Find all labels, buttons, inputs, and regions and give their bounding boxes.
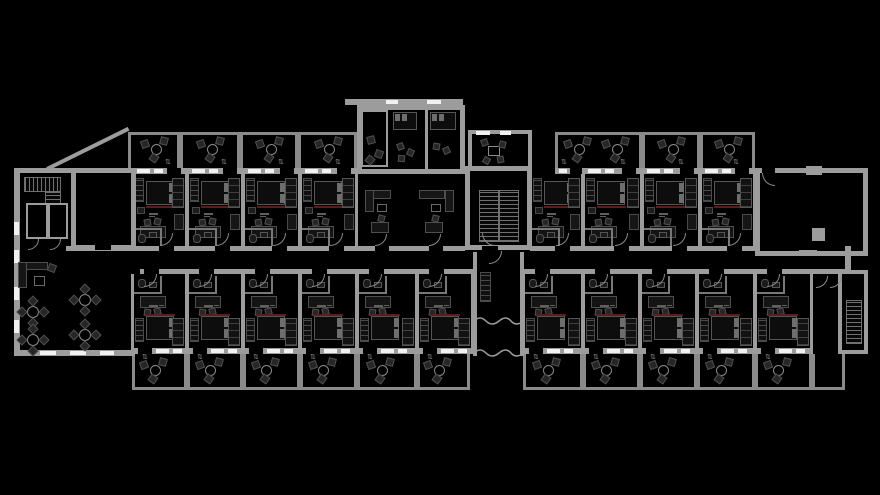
corridor-wall [140,269,473,274]
toilet [648,234,656,243]
exterior-wall [14,168,74,173]
chair [496,155,504,163]
window [248,169,261,173]
nightstand [535,207,543,214]
shaft-column [480,272,491,302]
tv-shelf [287,214,297,230]
window [721,349,734,353]
chair [254,218,262,226]
door-gap [95,245,111,250]
balcony-chair [255,139,265,149]
door-arc [330,233,343,246]
window [173,349,182,353]
shaft-column [190,318,199,342]
direction-arrow: ⇅ [335,159,341,166]
window [738,349,747,353]
shaft-column [700,318,709,342]
direction-arrow: ⇅ [620,159,626,166]
window [779,349,792,353]
bed-accent [656,206,685,208]
wardrobe [740,178,752,208]
door-gap [167,168,181,174]
chair [604,217,612,225]
balcony-chair [158,357,168,367]
door-arc [728,233,741,246]
label-mark [317,305,326,307]
stair-divider [498,190,500,242]
balcony-divider [640,354,643,390]
sink [149,232,157,238]
bathroom-partition [611,228,613,246]
label-mark [659,213,668,215]
window [14,222,19,235]
break-line [474,314,524,326]
balcony-chair [214,357,224,367]
nightstand [705,207,713,214]
window [284,349,293,353]
sink [659,232,667,238]
lounge-chair [90,294,101,305]
chair [551,217,559,225]
shaft-column [703,178,712,202]
balcony-divider [243,354,246,390]
bed-accent [257,206,286,208]
interior-wall [425,110,428,174]
bathroom-partition [611,276,613,294]
door-arc [489,251,502,264]
lounge-chair [38,334,49,345]
chair [541,218,549,226]
label-mark [550,305,555,306]
window [100,351,114,355]
bathroom-partition [245,228,273,230]
wardrobe [568,178,580,208]
window [228,349,237,353]
left-small-room [48,203,68,239]
shaft-column [246,178,255,202]
label-mark [317,213,326,215]
tv-shelf [687,214,697,230]
balcony-chair [610,357,620,367]
interior-wall [520,252,524,356]
label-mark [260,213,269,215]
balcony-divider [555,132,558,168]
balcony-divider [300,354,303,390]
label-mark [772,305,781,307]
shaft-column [303,178,312,202]
label-mark [724,305,729,306]
chair [321,217,329,225]
interior-wall [416,274,419,354]
door-gap [709,269,724,274]
window [192,169,205,173]
balcony-chair [620,136,630,146]
toilet [138,234,146,243]
balcony-chair [563,139,573,149]
wardrobe [342,318,354,346]
bathroom-partition [644,228,672,230]
window [564,349,573,353]
door-gap [144,269,159,274]
window [500,131,511,135]
window [441,349,454,353]
wardrobe [228,318,240,346]
door-gap [767,269,782,274]
bathroom-partition [271,276,273,294]
balcony-rail [128,132,180,135]
label-mark [657,305,666,307]
lounge-chair [90,329,101,340]
lounge-table [431,204,441,212]
balcony-chair [215,136,225,146]
label-mark [149,305,158,307]
nightstand [588,207,596,214]
bathroom-partition [189,292,217,294]
label-mark [714,305,723,307]
label-mark [444,305,449,306]
window [605,169,614,173]
balcony-divider [842,354,845,390]
door-gap [255,269,270,274]
balcony-divider [752,132,755,168]
door-arc [50,239,61,250]
sink [717,232,725,238]
window [14,320,19,333]
corridor-wall [520,269,845,274]
balcony-chair [582,136,592,146]
tv-shelf [174,214,184,230]
structural-column [812,228,825,241]
floor-plan: ⇅⇅⇅⇅⇅⇅⇅⇅⇅⇅⇅⇅⇅⇅⇅⇅⇅⇅⇅ [0,0,880,495]
bathroom-partition [189,228,217,230]
balcony-chair [251,360,261,370]
interior-wall [299,274,302,354]
interior-wall [131,274,134,354]
door-arc [273,233,286,246]
tv-shelf [344,214,354,230]
direction-arrow: ⇅ [678,159,684,166]
door-gap [329,246,344,251]
balcony-divider [812,354,815,390]
sink [204,232,212,238]
balcony-table [27,334,39,346]
bathroom-partition [699,292,727,294]
bathroom-partition [585,292,613,294]
bed-accent [597,206,626,208]
bathroom-partition [551,276,553,294]
bathroom-partition [419,292,447,294]
chair [377,214,386,223]
door-gap [595,269,610,274]
shaft-column [533,178,542,202]
shaft-column [586,318,595,342]
window [209,169,218,173]
canopy [345,99,463,105]
wardrobe [172,178,184,208]
bathroom-partition [215,276,217,294]
balcony-divider [417,354,420,390]
interior-wall [754,274,757,354]
balcony-rail [642,132,700,135]
direction-arrow: ⇅ [733,159,739,166]
balcony-rail [640,387,697,390]
left-small-room [26,203,48,239]
bathroom-partition [160,276,162,294]
door-gap [614,246,629,251]
window [267,349,280,353]
door-gap [375,246,389,251]
bathroom-partition [670,228,672,246]
shaft-column [135,178,144,202]
interior-wall [639,274,642,354]
label-mark [270,305,275,306]
door-arc [816,276,828,288]
balcony-rail [180,132,240,135]
exterior-wall [46,127,129,171]
door-gap [727,246,742,251]
interior-wall [810,274,813,354]
shaft-column [758,318,767,342]
sink [600,232,608,238]
balcony-rail [583,387,640,390]
bathroom-partition [668,276,670,294]
balcony-chair [196,139,206,149]
balcony-chair [308,360,318,370]
balcony-rail [555,132,642,135]
label-mark [782,305,787,306]
window [137,169,150,173]
balcony-chair [333,136,343,146]
window [607,349,620,353]
balcony-rail [812,387,845,390]
label-mark [547,213,556,215]
balcony-divider [180,132,183,168]
toilet [536,234,544,243]
pillow [395,114,400,121]
bed-accent [146,206,175,208]
balcony-rail [300,387,357,390]
interior-wall [355,168,358,246]
door-arc [429,234,441,246]
chair [480,138,489,147]
balcony-chair [366,360,376,370]
balcony-table [27,306,39,318]
bathroom-partition [445,276,447,294]
window [322,169,331,173]
bathroom-partition [134,228,162,230]
lounge-chair [79,305,90,316]
nightstand [137,207,145,214]
window [341,349,350,353]
staircase [846,300,862,344]
balcony-divider [642,132,645,168]
door-gap [159,246,174,251]
door-gap [652,269,667,274]
door-gap [570,168,582,174]
window [722,169,731,173]
staircase [24,177,61,192]
balcony-chair [159,136,169,146]
upper-room [468,130,532,170]
chair [711,218,719,226]
balcony-chair [648,360,658,370]
balcony-chair [724,357,734,367]
shaft-column [190,178,199,202]
balcony-rail [298,132,357,135]
balcony-chair [274,136,284,146]
direction-arrow: ⇅ [221,159,227,166]
balcony-chair [657,139,667,149]
wall-tick [799,250,817,256]
door-gap [429,246,443,251]
label-mark [610,305,615,306]
wardrobe [797,318,809,346]
window [624,349,633,353]
balcony-chair [385,357,395,367]
direction-arrow: ⇅ [278,159,284,166]
toilet [306,234,314,243]
shaft-column [526,318,535,342]
interior-wall [356,274,359,354]
label-mark [384,305,389,306]
window [211,349,224,353]
label-mark [214,305,219,306]
door-arc [615,233,628,246]
window [14,287,19,300]
balcony-chair [782,357,792,367]
balcony-divider [132,354,135,390]
balcony-divider [187,354,190,390]
interior-wall [473,252,477,356]
chair [498,140,507,149]
window [305,169,318,173]
label-mark [540,305,549,307]
window [681,349,690,353]
bathroom-partition [525,292,553,294]
label-mark [327,305,332,306]
window [664,349,677,353]
balcony-rail [187,387,243,390]
label-mark [374,305,383,307]
bathroom-partition [359,292,387,294]
window [154,169,163,173]
chair [208,217,216,225]
door-gap [223,168,237,174]
break-line [474,346,524,358]
chair [311,218,319,226]
balcony-chair [667,357,677,367]
label-mark [667,305,672,306]
door-arc [28,239,39,250]
bathroom-partition [702,228,730,230]
wardrobe [682,318,694,346]
interior-wall [582,274,585,354]
pillow [620,183,625,192]
lounge-sofa [18,262,27,288]
balcony-chair [763,360,773,370]
balcony-table [79,294,91,306]
lounge-table [377,204,387,212]
chair [432,142,440,150]
chair [431,214,440,223]
balcony-chair [733,136,743,146]
bathroom-partition [757,292,785,294]
balcony-chair [601,139,611,149]
shaft-column [643,318,652,342]
chair [653,218,661,226]
balcony-chair [327,357,337,367]
pillow [560,318,565,327]
door-gap [312,269,327,274]
wardrobe [342,178,354,208]
balcony-rail [523,387,583,390]
interior-wall [641,168,644,246]
bathroom-partition [585,228,613,230]
bed-accent [314,206,343,208]
wardrobe [685,178,697,208]
window [386,100,398,104]
bathroom-partition [245,292,273,294]
chair [153,217,161,225]
bathroom-partition [385,276,387,294]
shaft-column [135,318,144,342]
chair [396,142,405,151]
door-gap [555,246,570,251]
door-gap [369,269,384,274]
shaft-column [586,178,595,202]
pillow [679,183,684,192]
tv-shelf [742,214,752,230]
sink [547,232,555,238]
nightstand [248,207,256,214]
chair [264,217,272,225]
balcony-divider [523,354,526,390]
balcony-rail [132,387,187,390]
door-gap [215,246,230,251]
chair [198,218,206,226]
label-mark [600,213,609,215]
interior-wall [582,168,585,246]
balcony-chair [139,360,149,370]
balcony-divider [128,132,131,168]
label-mark [717,213,726,215]
wardrobe [625,318,637,346]
chair [594,218,602,226]
shaft-column [246,318,255,342]
door-gap [535,269,550,274]
window [40,351,56,355]
wardrobe [568,318,580,346]
bathroom-partition [134,292,162,294]
label-mark [159,305,164,306]
pillow [734,318,739,327]
bathroom-partition [302,228,330,230]
door-gap [199,269,214,274]
lounge-chair [68,294,79,305]
interior-wall [696,274,699,354]
bathroom-partition [302,292,330,294]
label-mark [600,305,609,307]
pillow [560,329,565,338]
desk [371,222,389,233]
label-mark [260,305,269,307]
shaft-column [420,318,429,342]
interior-wall [242,274,245,354]
balcony-divider [700,132,703,168]
balcony-chair [140,139,150,149]
window [664,169,673,173]
toilet [589,234,597,243]
